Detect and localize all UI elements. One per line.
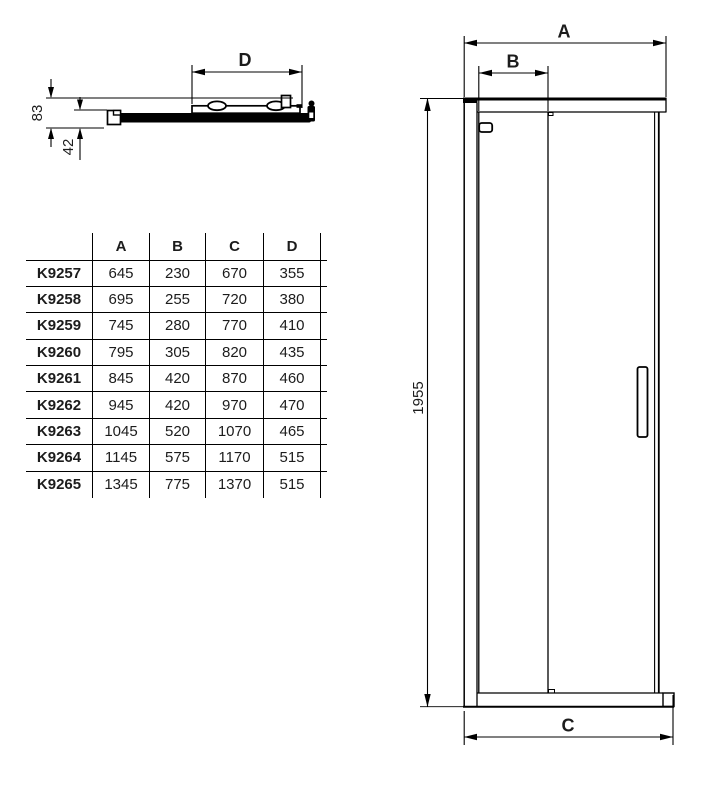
value-cell: 465: [264, 418, 321, 444]
column-header-c: C: [206, 233, 264, 260]
end-clip: [308, 101, 316, 122]
dimension-42: 42: [60, 97, 107, 160]
spacer-cell: [321, 313, 328, 339]
dim-83-label: 83: [29, 105, 46, 122]
value-cell: 515: [264, 471, 321, 497]
spacer-cell: [321, 418, 328, 444]
dim-c-label: C: [562, 716, 575, 736]
spacer-cell: [321, 339, 328, 365]
table-row: K9264 1145 575 1170 515: [26, 445, 327, 471]
arrow-left-icon: [192, 69, 205, 75]
arrow-down-icon: [424, 694, 430, 707]
value-cell: 1045: [93, 418, 150, 444]
value-cell: 970: [206, 392, 264, 418]
bottom-rail-end-cap: [663, 693, 674, 707]
roller-left: [208, 101, 226, 110]
value-cell: 410: [264, 313, 321, 339]
model-cell: K9261: [26, 366, 93, 392]
column-header-d: D: [264, 233, 321, 260]
value-cell: 1170: [206, 445, 264, 471]
value-cell: 870: [206, 366, 264, 392]
table-row: K9265 1345 775 1370 515: [26, 471, 327, 497]
spec-sheet: D 83 42: [0, 0, 725, 789]
column-header-b: B: [150, 233, 206, 260]
dimensions-table-wrap: A B C D K9257 645 230 670 355 K9258 695 …: [26, 233, 327, 498]
value-cell: 230: [150, 260, 206, 286]
door-handle-bar: [638, 367, 648, 437]
corner-cell: [26, 233, 93, 260]
value-cell: 1070: [206, 418, 264, 444]
table-row: K9261 845 420 870 460: [26, 366, 327, 392]
value-cell: 1145: [93, 445, 150, 471]
dim-height-label: 1955: [410, 381, 427, 414]
model-cell: K9264: [26, 445, 93, 471]
spacer-cell: [321, 366, 328, 392]
model-cell: K9260: [26, 339, 93, 365]
wall-profile-notch: [114, 111, 121, 116]
value-cell: 420: [150, 392, 206, 418]
table-row: K9262 945 420 970 470: [26, 392, 327, 418]
arrow-up-icon: [77, 128, 83, 139]
roller-bracket: [282, 96, 291, 108]
value-cell: 1345: [93, 471, 150, 497]
spacer-cell: [321, 392, 328, 418]
spacer-cell: [321, 286, 328, 312]
dimension-c: C: [464, 695, 673, 745]
track-profile-section: [108, 96, 316, 125]
arrow-right-icon: [660, 734, 673, 740]
arrow-right-icon: [653, 40, 666, 46]
value-cell: 280: [150, 313, 206, 339]
front-view-drawing: A B 1955 C: [410, 22, 674, 746]
dimension-height: 1955: [410, 98, 463, 707]
arrow-left-icon: [464, 40, 477, 46]
divider-top-guide: [549, 113, 554, 116]
arrow-left-icon: [479, 70, 492, 76]
table-row: K9257 645 230 670 355: [26, 260, 327, 286]
model-cell: K9263: [26, 418, 93, 444]
value-cell: 305: [150, 339, 206, 365]
value-cell: 820: [206, 339, 264, 365]
value-cell: 670: [206, 260, 264, 286]
arrow-down-icon: [48, 87, 54, 98]
table-row: K9258 695 255 720 380: [26, 286, 327, 312]
spacer-cell: [321, 233, 328, 260]
value-cell: 945: [93, 392, 150, 418]
table-row: K9263 1045 520 1070 465: [26, 418, 327, 444]
value-cell: 460: [264, 366, 321, 392]
value-cell: 520: [150, 418, 206, 444]
arrow-down-icon: [77, 100, 83, 111]
value-cell: 845: [93, 366, 150, 392]
arrow-up-icon: [48, 128, 54, 139]
value-cell: 770: [206, 313, 264, 339]
value-cell: 645: [93, 260, 150, 286]
model-cell: K9265: [26, 471, 93, 497]
value-cell: 380: [264, 286, 321, 312]
value-cell: 745: [93, 313, 150, 339]
dimensions-table: A B C D K9257 645 230 670 355 K9258 695 …: [26, 233, 327, 498]
arrow-up-icon: [424, 98, 430, 111]
top-view-drawing: D 83 42: [29, 50, 315, 160]
value-cell: 775: [150, 471, 206, 497]
spacer-cell: [321, 471, 328, 497]
dimension-b: B: [479, 52, 548, 112]
dimension-a: A: [464, 22, 666, 98]
value-cell: 795: [93, 339, 150, 365]
door-handle-knob: [479, 123, 492, 132]
value-cell: 420: [150, 366, 206, 392]
value-cell: 355: [264, 260, 321, 286]
dim-42-label: 42: [60, 139, 77, 156]
arrow-left-icon: [464, 734, 477, 740]
value-cell: 575: [150, 445, 206, 471]
top-rail-top-edge: [463, 98, 667, 101]
table-header-row: A B C D: [26, 233, 327, 260]
column-header-a: A: [93, 233, 150, 260]
wall-profile-cap: [463, 98, 478, 104]
dim-a-label: A: [558, 22, 571, 42]
value-cell: 695: [93, 286, 150, 312]
value-cell: 255: [150, 286, 206, 312]
model-cell: K9257: [26, 260, 93, 286]
model-cell: K9262: [26, 392, 93, 418]
model-cell: K9258: [26, 286, 93, 312]
dim-d-label: D: [239, 50, 252, 70]
value-cell: 720: [206, 286, 264, 312]
spacer-cell: [321, 445, 328, 471]
arrow-right-icon: [535, 70, 548, 76]
dim-b-label: B: [507, 52, 520, 72]
model-cell: K9259: [26, 313, 93, 339]
value-cell: 515: [264, 445, 321, 471]
track-bar: [118, 113, 311, 123]
door-frame: [463, 98, 674, 708]
value-cell: 1370: [206, 471, 264, 497]
value-cell: 470: [264, 392, 321, 418]
arrow-right-icon: [289, 69, 302, 75]
value-cell: 435: [264, 339, 321, 365]
table-row: K9259 745 280 770 410: [26, 313, 327, 339]
spacer-cell: [321, 260, 328, 286]
table-row: K9260 795 305 820 435: [26, 339, 327, 365]
guide-pin: [297, 104, 302, 108]
